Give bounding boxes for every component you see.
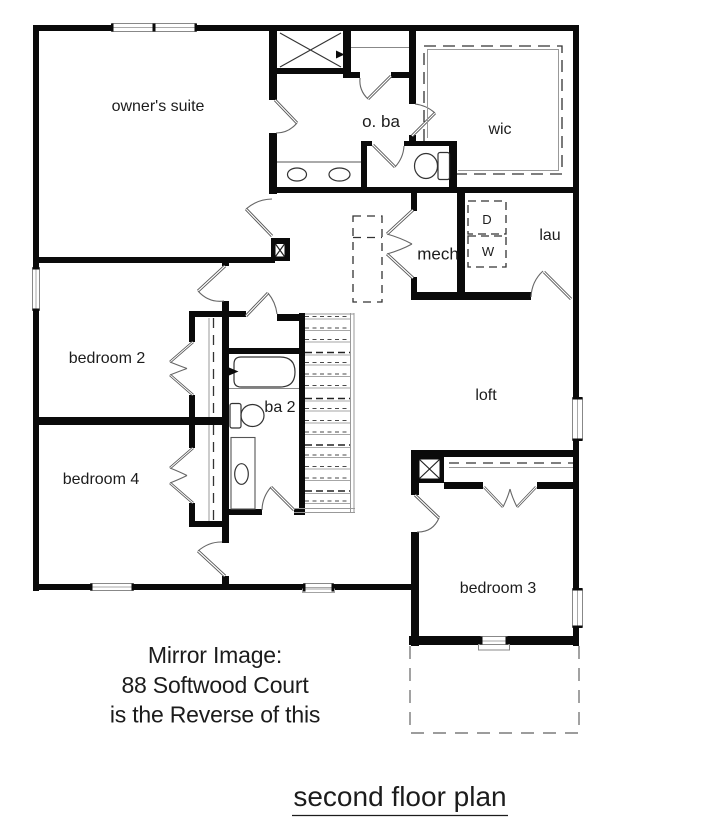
svg-text:mech: mech: [417, 245, 459, 264]
svg-text:bedroom 2: bedroom 2: [69, 350, 146, 367]
svg-text:D: D: [482, 212, 491, 227]
svg-text:wic: wic: [487, 121, 511, 138]
svg-text:bedroom 3: bedroom 3: [460, 580, 537, 597]
svg-text:88 Softwood Court: 88 Softwood Court: [121, 672, 309, 698]
svg-text:is the Reverse of this: is the Reverse of this: [110, 702, 320, 728]
svg-text:lau: lau: [539, 227, 560, 244]
svg-text:second floor plan: second floor plan: [293, 781, 506, 812]
svg-text:Mirror Image:: Mirror Image:: [148, 642, 282, 668]
svg-text:bedroom 4: bedroom 4: [63, 471, 140, 488]
svg-text:owner's suite: owner's suite: [112, 98, 205, 115]
svg-text:o. ba: o. ba: [362, 112, 400, 131]
svg-text:ba 2: ba 2: [264, 399, 295, 416]
svg-text:loft: loft: [475, 387, 497, 404]
svg-text:W: W: [482, 244, 495, 259]
